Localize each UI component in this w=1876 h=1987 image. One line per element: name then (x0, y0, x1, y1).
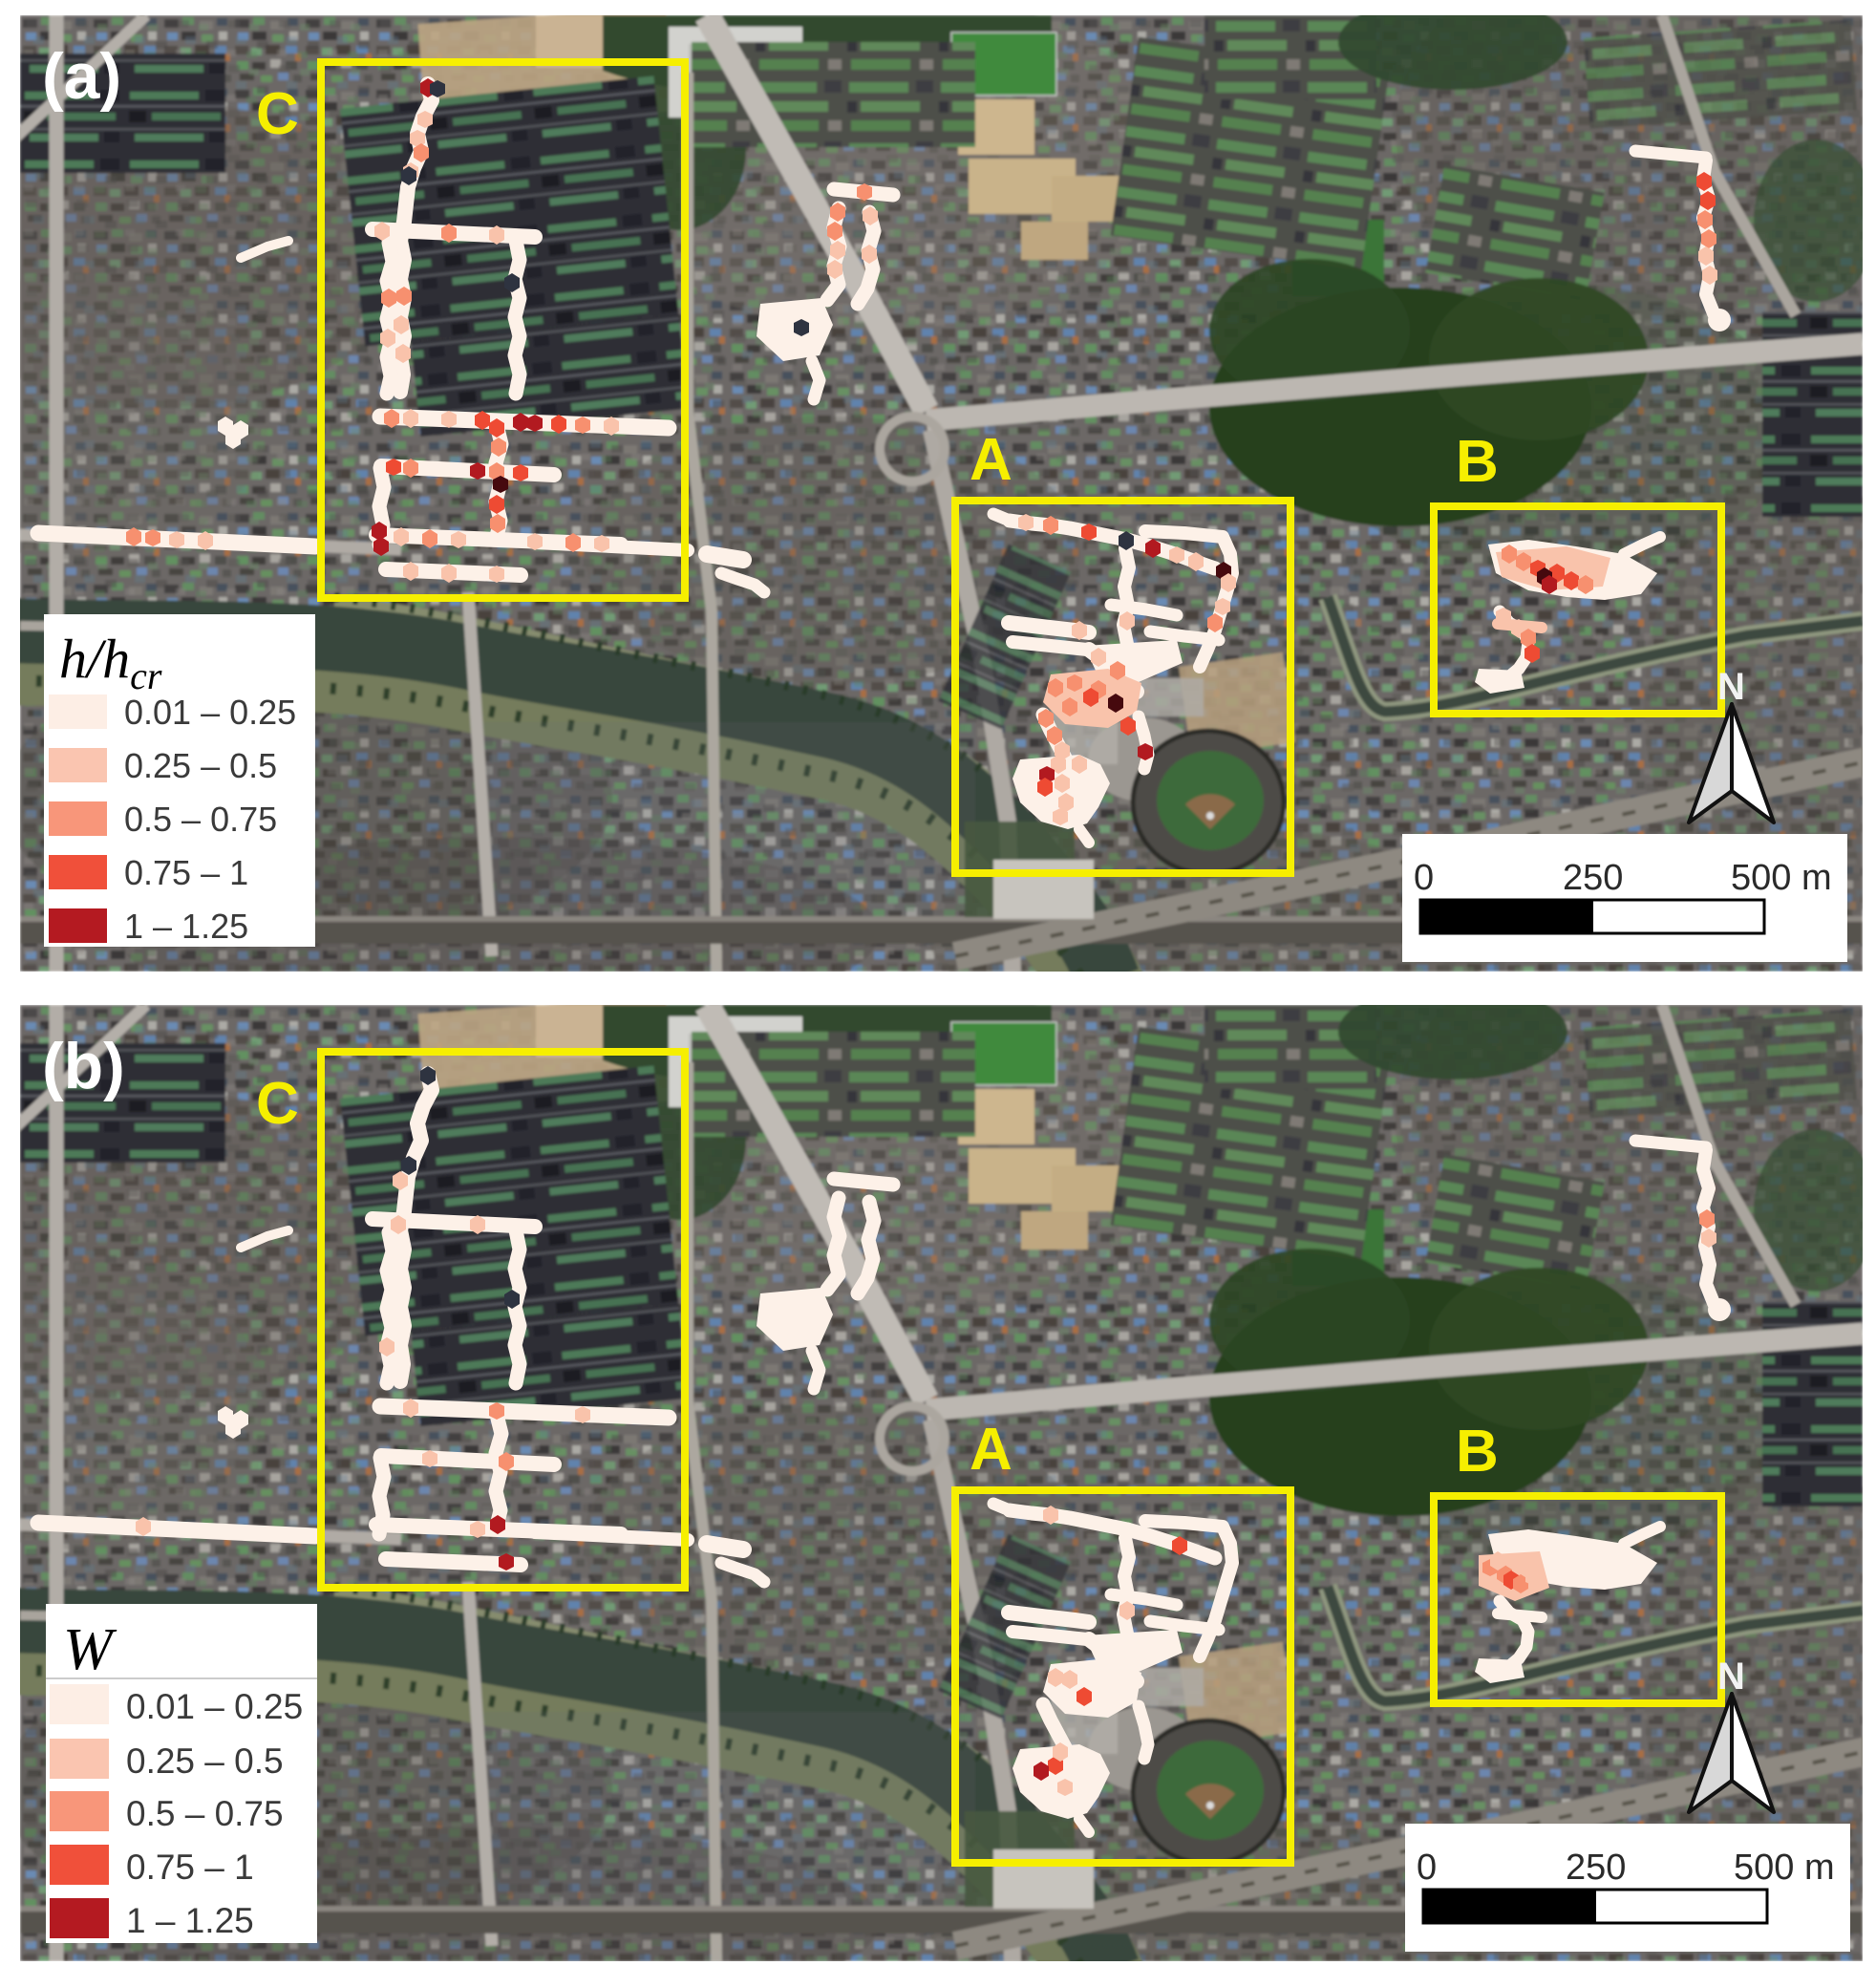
svg-text:C: C (256, 1071, 299, 1137)
svg-text:(a): (a) (42, 40, 121, 113)
svg-text:N: N (1717, 666, 1745, 708)
svg-text:A: A (970, 1417, 1013, 1483)
svg-text:0.25 – 0.5: 0.25 – 0.5 (124, 746, 277, 785)
svg-text:250: 250 (1566, 1848, 1626, 1888)
svg-text:1 – 1.25: 1 – 1.25 (126, 1901, 254, 1940)
svg-text:B: B (1456, 1419, 1499, 1485)
svg-text:250: 250 (1563, 858, 1623, 898)
svg-text:0.75 – 1: 0.75 – 1 (124, 853, 248, 892)
svg-text:0: 0 (1414, 858, 1434, 898)
svg-text:C: C (256, 81, 299, 147)
svg-text:N: N (1717, 1656, 1745, 1698)
svg-text:1 – 1.25: 1 – 1.25 (124, 907, 248, 946)
svg-text:0.5 – 0.75: 0.5 – 0.75 (124, 800, 277, 839)
svg-text:(b): (b) (42, 1030, 125, 1102)
svg-text:0: 0 (1417, 1848, 1437, 1888)
svg-text:0.5 – 0.75: 0.5 – 0.75 (126, 1794, 284, 1833)
svg-text:500 m: 500 m (1734, 1848, 1835, 1888)
svg-text:B: B (1456, 429, 1499, 495)
svg-text:W: W (63, 1617, 117, 1682)
svg-text:0.25 – 0.5: 0.25 – 0.5 (126, 1741, 284, 1781)
svg-text:0.01 – 0.25: 0.01 – 0.25 (126, 1687, 303, 1726)
svg-text:0.01 – 0.25: 0.01 – 0.25 (124, 693, 296, 732)
svg-text:500 m: 500 m (1731, 858, 1832, 898)
svg-text:A: A (970, 427, 1013, 493)
svg-text:0.75 – 1: 0.75 – 1 (126, 1848, 254, 1887)
